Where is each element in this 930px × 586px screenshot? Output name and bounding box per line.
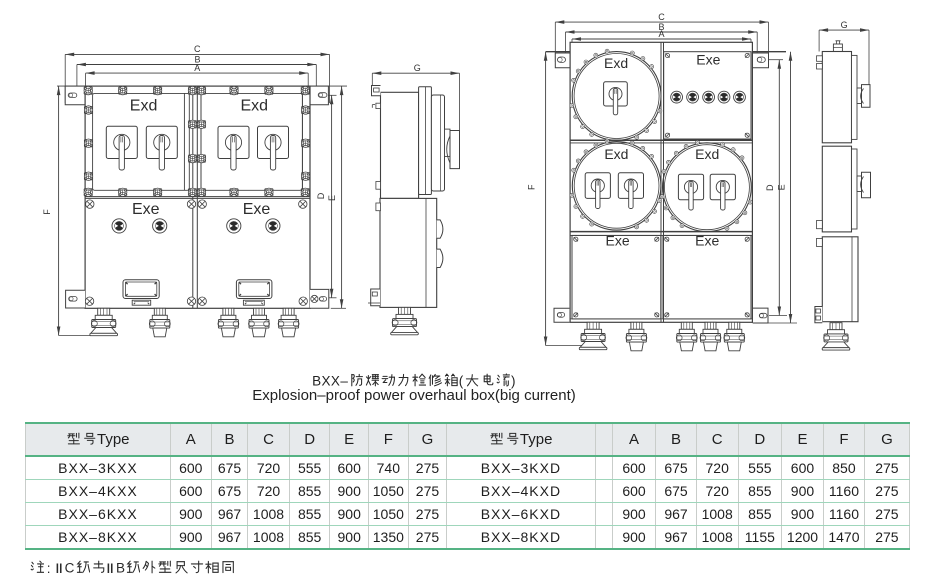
svg-text:Exe: Exe <box>606 232 630 248</box>
svg-text:Exd: Exd <box>604 146 628 162</box>
svg-text:G: G <box>414 63 421 73</box>
svg-text:Exd: Exd <box>241 98 269 115</box>
svg-text:Exe: Exe <box>243 201 271 218</box>
svg-text:Exd: Exd <box>695 146 719 162</box>
svg-text:Exe: Exe <box>695 232 719 248</box>
svg-text:Exe: Exe <box>696 52 720 68</box>
svg-text:D: D <box>316 192 326 199</box>
svg-text:C: C <box>658 12 665 22</box>
svg-text:Exd: Exd <box>604 55 628 71</box>
svg-text:Exe: Exe <box>132 201 160 218</box>
svg-text:E: E <box>327 195 337 201</box>
svg-text:C: C <box>194 44 201 54</box>
svg-text:D: D <box>765 184 775 191</box>
svg-text:F: F <box>42 209 52 215</box>
svg-text:F: F <box>527 184 537 190</box>
svg-text:G: G <box>841 20 848 30</box>
svg-text:Exd: Exd <box>130 98 158 115</box>
svg-text:A: A <box>194 63 200 73</box>
svg-text:A: A <box>658 29 664 39</box>
svg-text:E: E <box>777 184 787 190</box>
